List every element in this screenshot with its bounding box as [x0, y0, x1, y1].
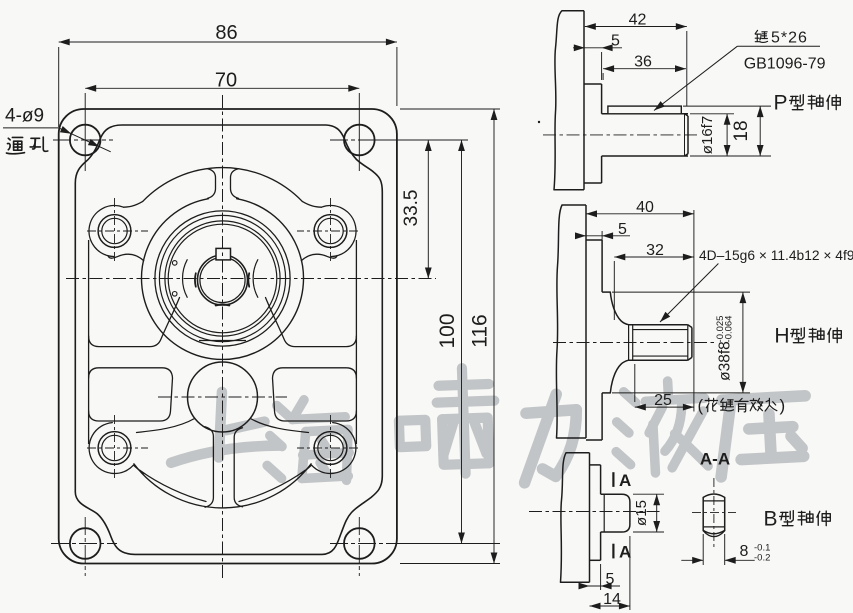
svg-text:33.5: 33.5	[401, 190, 422, 227]
svg-text:GB1096-79: GB1096-79	[744, 56, 826, 73]
svg-text:ø16f7: ø16f7	[699, 116, 716, 154]
svg-text:4-ø9: 4-ø9	[5, 106, 44, 127]
svg-text:14: 14	[603, 591, 621, 608]
svg-text:70: 70	[215, 69, 237, 91]
svg-text:5*26: 5*26	[771, 30, 808, 47]
svg-text:B: B	[763, 508, 777, 531]
svg-text:P: P	[773, 92, 787, 115]
svg-text:5: 5	[618, 221, 627, 238]
svg-text:42: 42	[629, 11, 647, 28]
svg-text:): )	[780, 396, 786, 415]
svg-text:86: 86	[215, 22, 237, 44]
svg-text:A: A	[619, 471, 631, 490]
svg-text:ø15: ø15	[633, 500, 650, 526]
svg-text:5: 5	[606, 571, 615, 588]
svg-text:8: 8	[740, 543, 749, 560]
svg-text:-0.064: -0.064	[724, 316, 735, 343]
svg-text:36: 36	[634, 54, 652, 71]
svg-text:(: (	[698, 396, 704, 415]
svg-text:A-A: A-A	[700, 450, 730, 469]
svg-text:5: 5	[611, 33, 620, 50]
svg-text:32: 32	[646, 242, 664, 259]
svg-text:4D–15g6 × 11.4b12 × 4f9: 4D–15g6 × 11.4b12 × 4f9	[699, 248, 853, 263]
svg-text:25: 25	[654, 392, 672, 409]
svg-text:H: H	[774, 325, 789, 348]
svg-text:18: 18	[731, 120, 752, 141]
svg-text:ø38f8: ø38f8	[717, 341, 734, 381]
svg-text:100: 100	[436, 313, 459, 348]
svg-text:116: 116	[469, 314, 492, 347]
svg-text:-0.2: -0.2	[754, 553, 770, 564]
svg-text:40: 40	[636, 199, 654, 216]
